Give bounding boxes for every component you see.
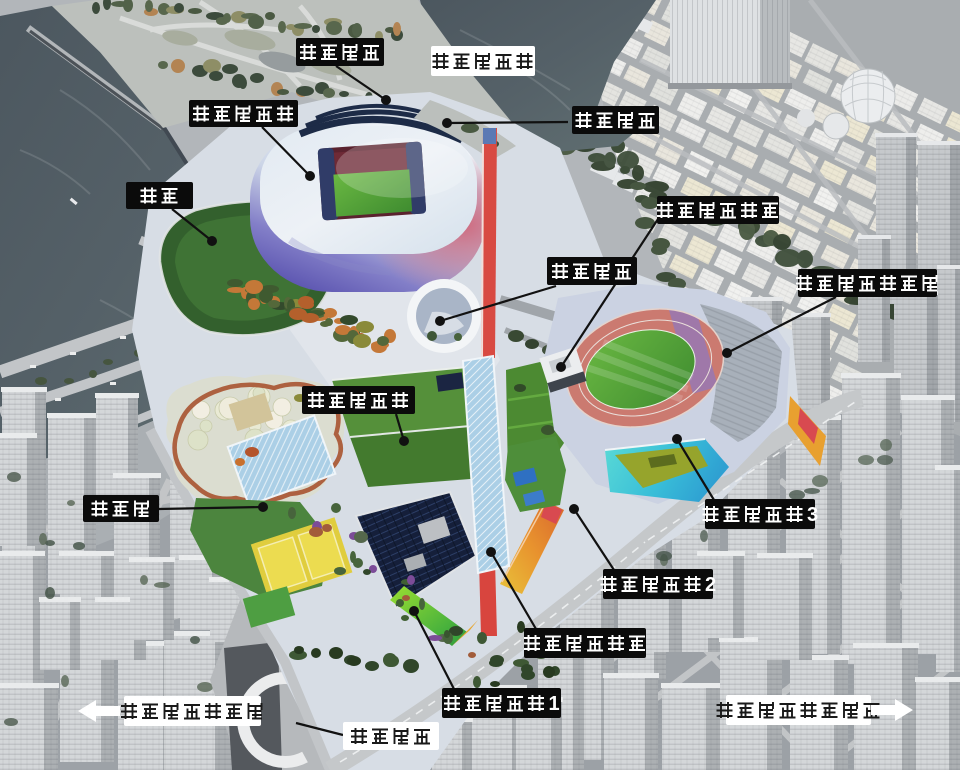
svg-text:3: 3 [807,504,818,526]
svg-text:1: 1 [548,693,559,715]
svg-text:2: 2 [705,574,716,596]
